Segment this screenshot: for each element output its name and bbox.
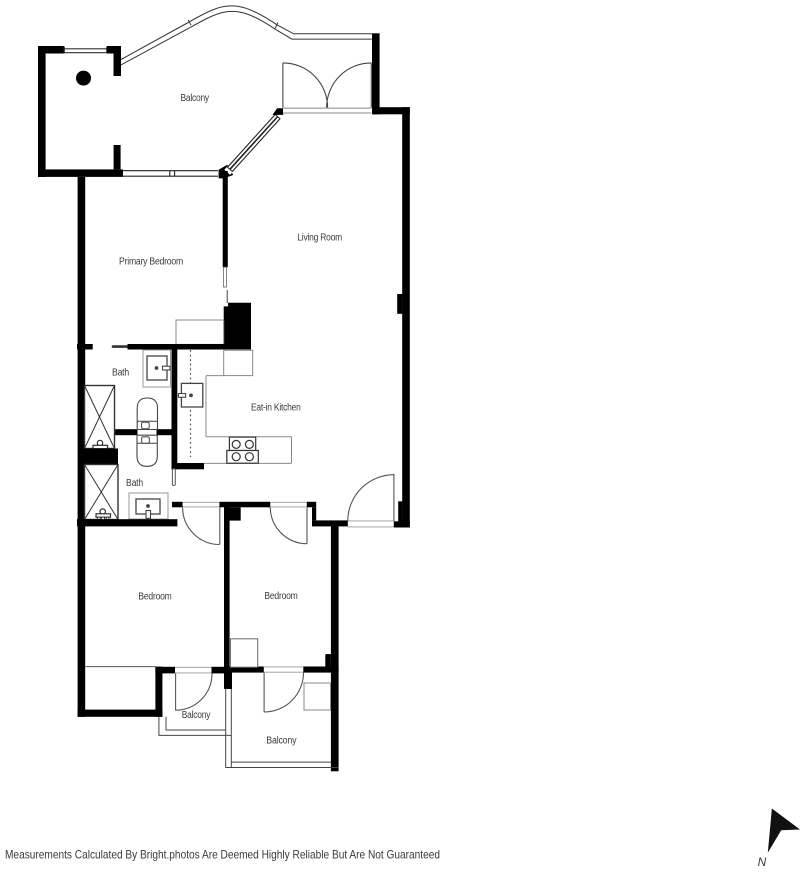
svg-text:Balcony: Balcony — [182, 710, 211, 721]
svg-text:Balcony: Balcony — [266, 736, 296, 747]
svg-text:N: N — [758, 855, 767, 869]
svg-text:Bedroom: Bedroom — [264, 591, 297, 602]
svg-text:Bath: Bath — [126, 478, 143, 489]
svg-text:Bedroom: Bedroom — [138, 591, 171, 602]
svg-text:Balcony: Balcony — [180, 93, 209, 104]
svg-text:Primary Bedroom: Primary Bedroom — [119, 257, 183, 268]
svg-text:Eat-in Kitchen: Eat-in Kitchen — [251, 403, 301, 414]
svg-text:Bath: Bath — [112, 368, 129, 379]
svg-text:Measurements Calculated By Bri: Measurements Calculated By Bright.photos… — [5, 848, 440, 862]
svg-text:Living Room: Living Room — [297, 233, 342, 244]
